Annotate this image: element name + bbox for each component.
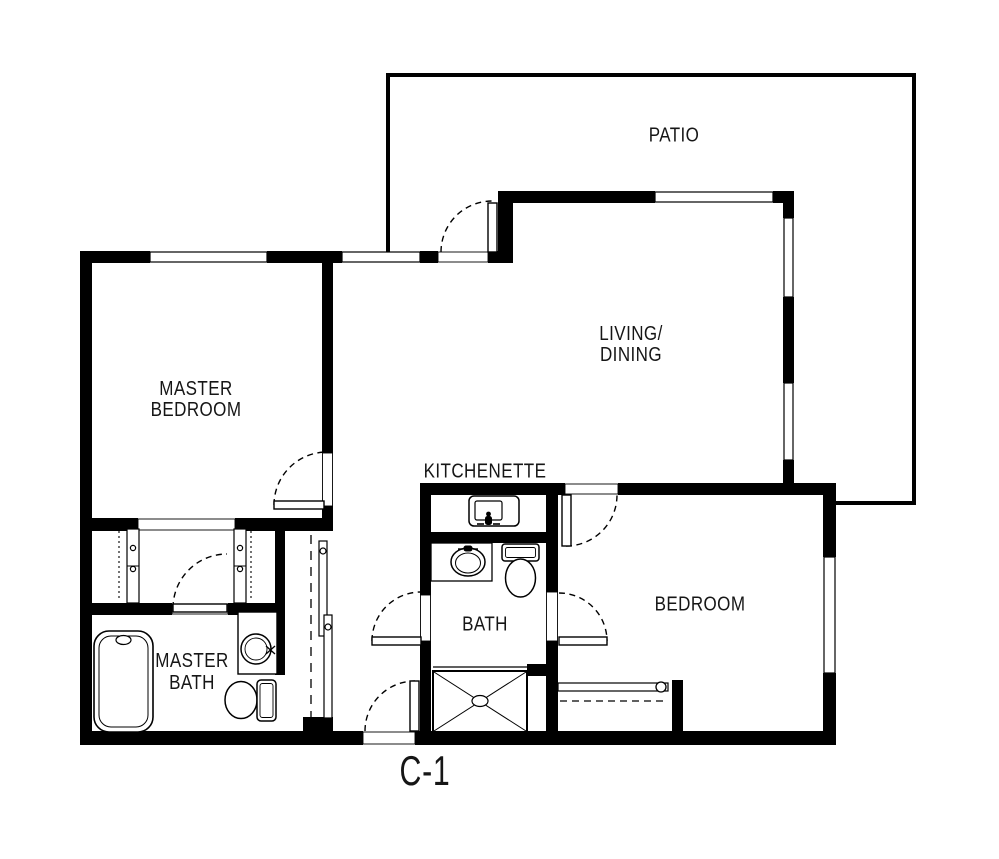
- patio-door-arc: [441, 201, 492, 252]
- bathtub-basin: [99, 636, 148, 727]
- bath-left-door-opening: [421, 595, 431, 641]
- bath-faucet: [464, 546, 473, 552]
- floor-plan-drawing: [0, 0, 999, 859]
- closet-2: [234, 529, 251, 603]
- living-top-window: [655, 192, 773, 202]
- bath-right-door-arc: [559, 593, 607, 641]
- wall-closet-top-b: [235, 518, 333, 531]
- closet-2-knob-bottom: [237, 566, 242, 571]
- room-label-patio: PATIO: [649, 126, 700, 147]
- wall-bedroom-top-b: [618, 483, 836, 495]
- closet-1-knob-bottom: [130, 566, 135, 571]
- bottom-entry-door-arc: [365, 681, 415, 731]
- bedroom-closet-shelf: [558, 683, 668, 691]
- hall-closet-knob-1: [320, 548, 326, 554]
- masterbath-vanity: [238, 612, 277, 674]
- wall-masterbath-top-a: [80, 603, 172, 615]
- wall-shower-stub: [527, 664, 546, 676]
- bedroom-door-leaf: [562, 495, 571, 546]
- patio-door-leaf: [488, 203, 497, 252]
- wall-top-b: [267, 251, 342, 263]
- wall-left-exterior: [80, 251, 92, 745]
- wall-top-a: [80, 251, 150, 263]
- bedroom-label-text: BEDROOM: [655, 594, 746, 616]
- closet-1-knob-top: [130, 545, 135, 550]
- master-bath-line-2: BATH: [155, 672, 228, 694]
- masterbath-door-leaf: [173, 604, 227, 612]
- room-label-master-bath: MASTER BATH: [155, 650, 228, 694]
- wall-bath-left-b: [420, 641, 431, 745]
- master-bedroom-window-1: [150, 252, 267, 262]
- shower: [433, 667, 527, 732]
- bathtub: [94, 631, 153, 732]
- cased-opening: [138, 519, 235, 530]
- bath-vanity: [431, 543, 492, 581]
- closet-2-knob-top: [237, 545, 242, 550]
- living-right-window-1: [784, 218, 793, 297]
- masterbath-toilet-bowl: [225, 682, 257, 719]
- wall-top-c: [420, 251, 438, 263]
- bath-toilet-tank-inner: [506, 548, 536, 558]
- wall-top-hinge: [488, 251, 498, 263]
- bedroom-closet: [558, 682, 668, 701]
- wall-master-right-a: [322, 263, 333, 453]
- bathtub-faucet: [116, 636, 131, 645]
- bath-toilet: [502, 544, 539, 597]
- kitchen-faucet-body: [485, 516, 492, 525]
- living-dining-line-2: DINING: [599, 345, 662, 366]
- master-bedroom-line-1: MASTER: [151, 379, 242, 400]
- patio-door-opening: [438, 252, 488, 262]
- master-bedroom-line-2: BEDROOM: [151, 400, 242, 421]
- master-door-arc: [274, 452, 327, 505]
- kitchenette-label-text: KITCHENETTE: [424, 461, 547, 483]
- masterbath-toilet: [225, 680, 276, 721]
- plan-code-text: C-1: [400, 747, 451, 794]
- master-door-opening: [323, 453, 333, 506]
- kitchen-sink: [469, 496, 519, 526]
- hall-closet-knob-2: [325, 624, 331, 630]
- room-label-bedroom: BEDROOM: [655, 595, 746, 616]
- wall-living-right-b: [783, 297, 794, 383]
- living-right-window-2: [784, 383, 793, 460]
- patio-wall-top: [386, 73, 916, 77]
- wall-bath-right-a: [546, 483, 558, 592]
- master-door-leaf: [274, 501, 324, 509]
- plan-code: C-1: [400, 747, 451, 795]
- patio-label-text: PATIO: [649, 125, 700, 147]
- bath-left-door-leaf: [372, 637, 421, 645]
- hall-closet: [311, 535, 332, 727]
- wall-bedroom-right-a: [823, 483, 836, 557]
- wall-bath-right-b: [546, 641, 558, 745]
- patio-wall-bottom: [834, 501, 916, 505]
- bedroom-door-arc: [566, 495, 617, 546]
- wall-bedroom-closet-right: [672, 680, 683, 738]
- living-dining-line-1: LIVING/: [599, 324, 662, 345]
- wall-kitchenette-bottom: [420, 532, 558, 543]
- room-label-living-dining: LIVING/ DINING: [599, 324, 662, 366]
- kitchen-faucet-head: [486, 512, 491, 517]
- bath-toilet-bowl: [506, 559, 536, 597]
- masterbath-door-arc: [173, 554, 227, 608]
- room-label-master-bedroom: MASTER BEDROOM: [151, 379, 242, 421]
- bedroom-closet-bracket: [656, 682, 666, 692]
- master-bedroom-window-2: [342, 252, 420, 262]
- masterbath-sink-basin: [245, 638, 267, 660]
- bottom-entry-opening: [363, 732, 415, 744]
- wall-bath-left-a: [420, 483, 431, 595]
- patio-wall-right: [912, 73, 916, 505]
- wall-living-right-a: [783, 191, 794, 218]
- bath-sink-basin: [456, 553, 481, 573]
- masterbath-toilet-tank-inner: [260, 684, 273, 718]
- floor-plan: PATIO LIVING/ DINING MASTER BEDROOM KITC…: [0, 0, 999, 859]
- bath-left-door-arc: [372, 592, 421, 641]
- wall-kitchenette-top: [420, 483, 558, 495]
- room-label-kitchenette: KITCHENETTE: [424, 462, 547, 483]
- bath-right-door-leaf: [559, 637, 607, 645]
- wall-bottom-a: [80, 731, 363, 745]
- wall-closet-post: [303, 717, 333, 732]
- closet-1: [119, 529, 139, 603]
- bedroom-right-window: [824, 557, 835, 673]
- room-label-bath: BATH: [462, 615, 508, 636]
- bedroom-door-opening: [565, 484, 618, 494]
- patio-wall-left: [386, 73, 390, 253]
- shower-drain: [472, 696, 488, 707]
- bath-label-text: BATH: [462, 614, 508, 636]
- wall-bottom-b: [415, 731, 835, 745]
- master-bath-line-1: MASTER: [155, 650, 228, 672]
- bath-right-door-opening: [547, 592, 558, 641]
- wall-upper-a: [503, 191, 655, 203]
- bottom-entry-door-leaf: [410, 681, 419, 731]
